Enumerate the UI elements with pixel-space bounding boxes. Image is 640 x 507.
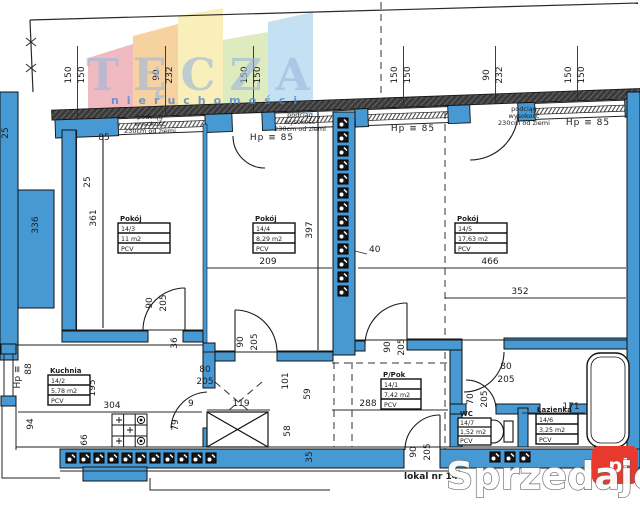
room-area: 1,52 m2 — [460, 429, 486, 436]
sprzedajemy-watermark: .pl Sprzedajemy — [446, 446, 640, 498]
dim: 304 — [103, 401, 120, 411]
room-id: 14/6 — [539, 417, 553, 424]
wall-cap — [1, 396, 16, 406]
room-title: WC — [460, 410, 473, 418]
dim: 361 — [89, 209, 99, 226]
sill-height-note: Hp ≡ 85 — [391, 124, 435, 134]
stove-icon — [112, 414, 147, 447]
dim-door: 205 — [159, 294, 169, 311]
dim: 336 — [31, 216, 41, 233]
dim-window: 150 — [403, 66, 413, 83]
dim-window: 150 — [64, 66, 74, 83]
room-title: Łazienka — [536, 406, 572, 414]
shaft-crossed-box — [207, 412, 268, 447]
dim-door: 205 — [250, 333, 260, 350]
room-area: 7,42 m2 — [384, 392, 410, 399]
room-floor: PCV — [458, 246, 471, 253]
dim-door: 90 — [383, 341, 393, 353]
dim-door: 205 — [497, 375, 514, 385]
dim-door: 80 — [199, 365, 211, 375]
wall-left — [62, 130, 76, 342]
wall-bottom-lump — [83, 467, 147, 481]
room-label-lazienka: Łazienka 14/6 3,25 m2 PCV — [536, 406, 578, 444]
dim: 79 — [171, 419, 181, 431]
wall-bottom-right-room — [407, 339, 462, 350]
room-title: P/Pok — [383, 371, 406, 379]
dim-entry-door: 90 — [409, 446, 419, 458]
room-floor: PCV — [384, 402, 397, 409]
dim: 101 — [281, 372, 291, 389]
dim-door: 205 — [480, 390, 490, 407]
dim-window: 150 — [564, 66, 574, 83]
dim-window: 150 — [577, 66, 587, 83]
dim-door: 90 — [236, 336, 246, 348]
room-title: Pokój — [120, 215, 142, 223]
dim: 88 — [24, 363, 34, 375]
dim-wall-thickness: 40 — [369, 245, 381, 255]
dim: 94 — [26, 418, 36, 430]
room-area: 5,78 m2 — [51, 388, 77, 395]
dim-door: 205 — [196, 377, 213, 387]
wall-cap — [1, 344, 16, 354]
beam-note: 230cm od ziemi — [498, 119, 550, 127]
room-id: 14/4 — [256, 226, 270, 233]
portal-wordmark: Sprzedajemy — [446, 454, 640, 498]
room-title: Pokój — [457, 215, 479, 223]
room-area: 3,25 m2 — [539, 427, 565, 434]
room-id: 14/7 — [460, 420, 474, 427]
beam-note: 230cm od ziemi — [124, 127, 176, 135]
sill-height-note: Hp ≡ 85 — [566, 118, 610, 128]
room-area: 11 m2 — [121, 236, 141, 243]
dim-door: 205 — [397, 338, 407, 355]
room-title: Kuchnia — [50, 367, 82, 375]
wall-kitchen-top — [183, 331, 203, 342]
wall-bottom-right-room — [355, 341, 365, 351]
bathtub-icon — [587, 353, 629, 447]
dim: 209 — [259, 257, 276, 267]
wall-room-divider — [203, 124, 207, 343]
room-floor: PCV — [256, 246, 269, 253]
floorplan-image: 150 150 90 232 150 150 150 150 90 232 15… — [0, 0, 640, 507]
tecza-subtitle: nieruchomości — [111, 94, 305, 107]
dim-window: 150 — [390, 66, 400, 83]
dim-door: 70 — [466, 393, 476, 405]
room-area: 17,63 m2 — [458, 236, 488, 243]
wall-pier — [448, 105, 471, 124]
wall-left-block — [18, 190, 54, 308]
dim-door: 90 — [482, 69, 492, 81]
dim: Hp ≡ — [13, 366, 23, 389]
dim: 9 — [188, 399, 194, 409]
wall-pier — [205, 114, 233, 133]
dim-entry-door: 205 — [423, 443, 433, 460]
dim: 59 — [303, 388, 313, 400]
dim: 25 — [83, 176, 93, 187]
dim-door: 232 — [495, 66, 505, 83]
dim: 25 — [1, 127, 11, 138]
beam-note: 230cm od ziemi — [274, 125, 326, 133]
sill-height-note: Hp ≡ 85 — [250, 133, 294, 143]
wall-kitchen-top — [62, 331, 148, 342]
dim: 66 — [80, 434, 90, 446]
dim: 58 — [283, 425, 293, 437]
dim: 288 — [359, 399, 376, 409]
dim: 352 — [511, 287, 528, 297]
room-id: 14/5 — [458, 226, 472, 233]
wall-pier — [355, 109, 369, 127]
room-id: 14/3 — [121, 226, 135, 233]
room-floor: PCV — [539, 437, 552, 444]
wall-wc-bath — [518, 408, 528, 447]
dim: 466 — [481, 257, 498, 267]
dim-door: 90 — [145, 297, 155, 309]
room-floor: PCV — [121, 246, 134, 253]
room-area: 8,29 m2 — [256, 236, 282, 243]
room-title: Pokój — [255, 215, 277, 223]
room-id: 14/2 — [51, 378, 65, 385]
room-floor: PCV — [51, 398, 64, 405]
room-id: 14/1 — [384, 382, 398, 389]
dim: 119 — [232, 399, 249, 409]
dim: 36 — [170, 337, 180, 349]
floorplan-svg: 150 150 90 232 150 150 150 150 90 232 15… — [0, 0, 640, 507]
dim: 397 — [305, 221, 315, 238]
sill-height-note: 85 — [98, 133, 109, 143]
dim: 35 — [305, 451, 315, 462]
room-floor: PCV — [460, 438, 473, 445]
dim-door: 80 — [500, 362, 512, 372]
